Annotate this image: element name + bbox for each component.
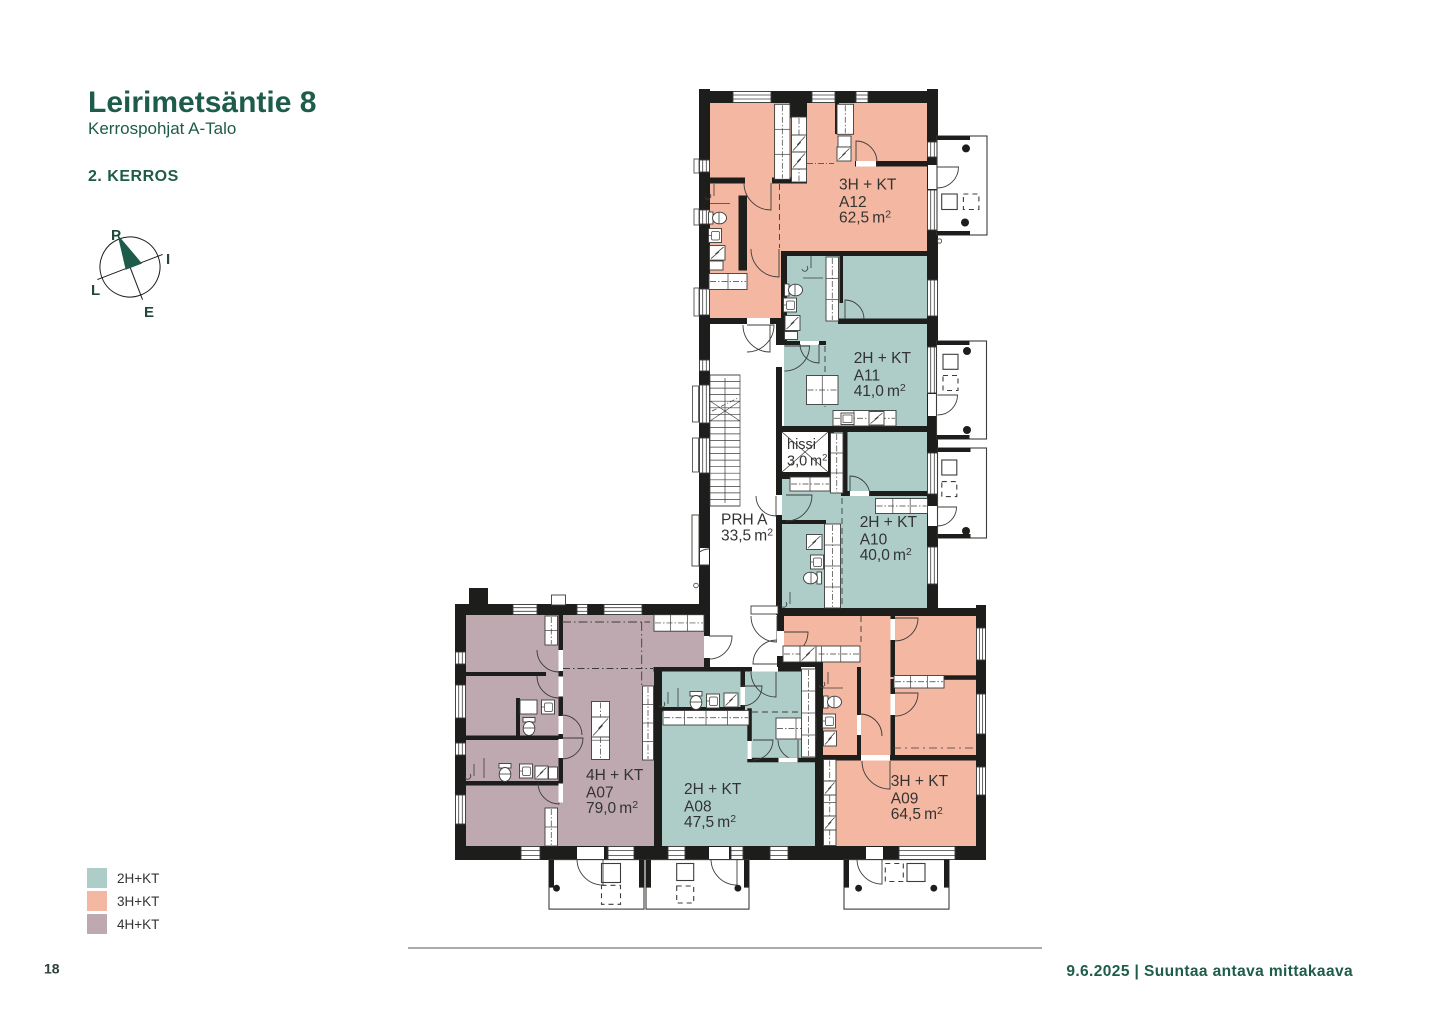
svg-text:3H + KT: 3H + KT: [891, 773, 949, 790]
svg-text:18: 18: [44, 961, 60, 977]
svg-text:62,5 m2: 62,5 m2: [839, 209, 891, 227]
svg-text:L: L: [91, 282, 100, 299]
svg-text:3H+KT: 3H+KT: [117, 894, 159, 909]
svg-text:64,5 m2: 64,5 m2: [891, 805, 943, 823]
svg-text:33,5 m2: 33,5 m2: [721, 527, 773, 545]
svg-text:2. KERROS: 2. KERROS: [88, 168, 179, 185]
svg-text:47,5 m2: 47,5 m2: [684, 813, 736, 831]
svg-text:A07: A07: [586, 785, 614, 802]
svg-text:79,0 m2: 79,0 m2: [586, 799, 638, 817]
svg-text:E: E: [144, 304, 154, 321]
svg-text:2H + KT: 2H + KT: [684, 781, 742, 798]
svg-text:A09: A09: [891, 791, 919, 808]
svg-text:A11: A11: [854, 368, 880, 385]
svg-text:A10: A10: [860, 532, 888, 549]
svg-text:4H+KT: 4H+KT: [117, 917, 159, 932]
svg-text:41,0 m2: 41,0 m2: [854, 382, 906, 400]
svg-text:A12: A12: [839, 194, 867, 211]
svg-text:3H + KT: 3H + KT: [839, 177, 897, 194]
svg-text:PRH A: PRH A: [721, 512, 768, 529]
svg-text:P: P: [111, 227, 121, 244]
svg-text:I: I: [166, 251, 170, 268]
svg-text:A08: A08: [684, 799, 712, 816]
svg-text:40,0 m2: 40,0 m2: [860, 546, 912, 564]
svg-text:3,0 m2: 3,0 m2: [787, 453, 827, 470]
svg-text:hissi: hissi: [787, 437, 816, 453]
svg-text:4H + KT: 4H + KT: [586, 767, 644, 784]
svg-text:9.6.2025 | Suuntaa antava mitt: 9.6.2025 | Suuntaa antava mittakaava: [1066, 963, 1353, 980]
svg-text:2H+KT: 2H+KT: [117, 871, 159, 886]
svg-text:Kerrospohjat A-Talo: Kerrospohjat A-Talo: [88, 119, 236, 138]
svg-text:Leirimetsäntie 8: Leirimetsäntie 8: [88, 86, 316, 119]
svg-text:2H + KT: 2H + KT: [860, 514, 918, 531]
svg-text:2H + KT: 2H + KT: [854, 350, 912, 367]
